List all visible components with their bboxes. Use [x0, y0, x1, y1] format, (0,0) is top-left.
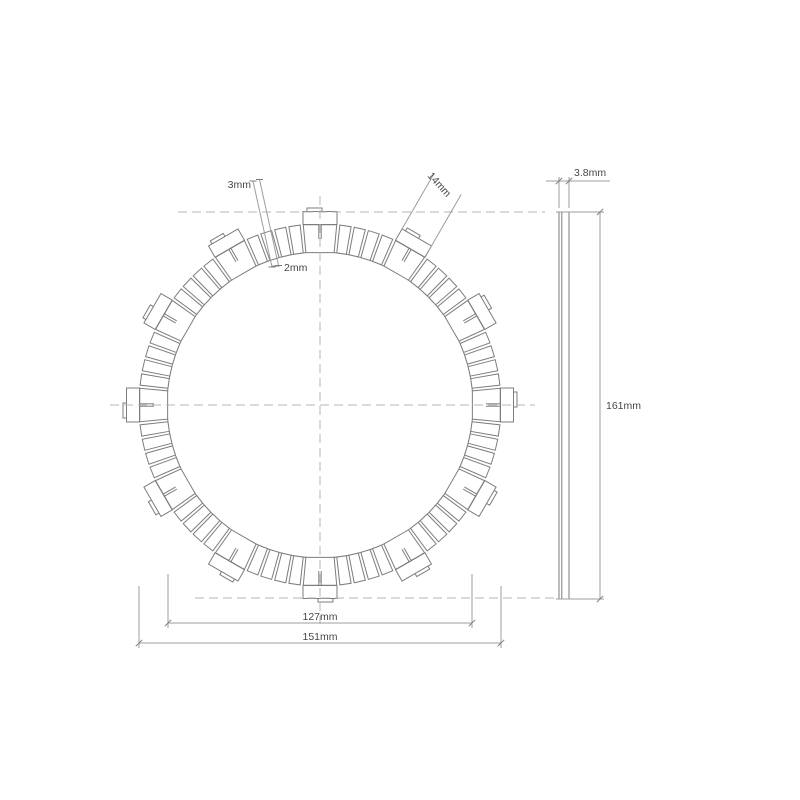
drawing-page: 3.8mm 161mm 127mm 151mm 3mm 2mm 14mm — [0, 0, 800, 800]
thickness-dimension-label: 3.8mm — [574, 167, 606, 179]
side-view-plate — [559, 212, 569, 599]
tab-width-dimension-label: 14mm — [425, 170, 454, 200]
friction-outer-diameter-dimension-label: 151mm — [302, 631, 337, 643]
dimension-thickness — [546, 177, 610, 208]
inner-diameter-dimension-label: 127mm — [302, 611, 337, 623]
groove-inner-dimension-label: 2mm — [284, 262, 308, 274]
groove-outer-dimension-label: 3mm — [228, 179, 252, 191]
drawing-geometry — [110, 173, 610, 648]
clutch-plate-technical-drawing: 3.8mm 161mm 127mm 151mm 3mm 2mm 14mm — [0, 0, 800, 800]
overall-diameter-dimension-label: 161mm — [606, 400, 641, 412]
